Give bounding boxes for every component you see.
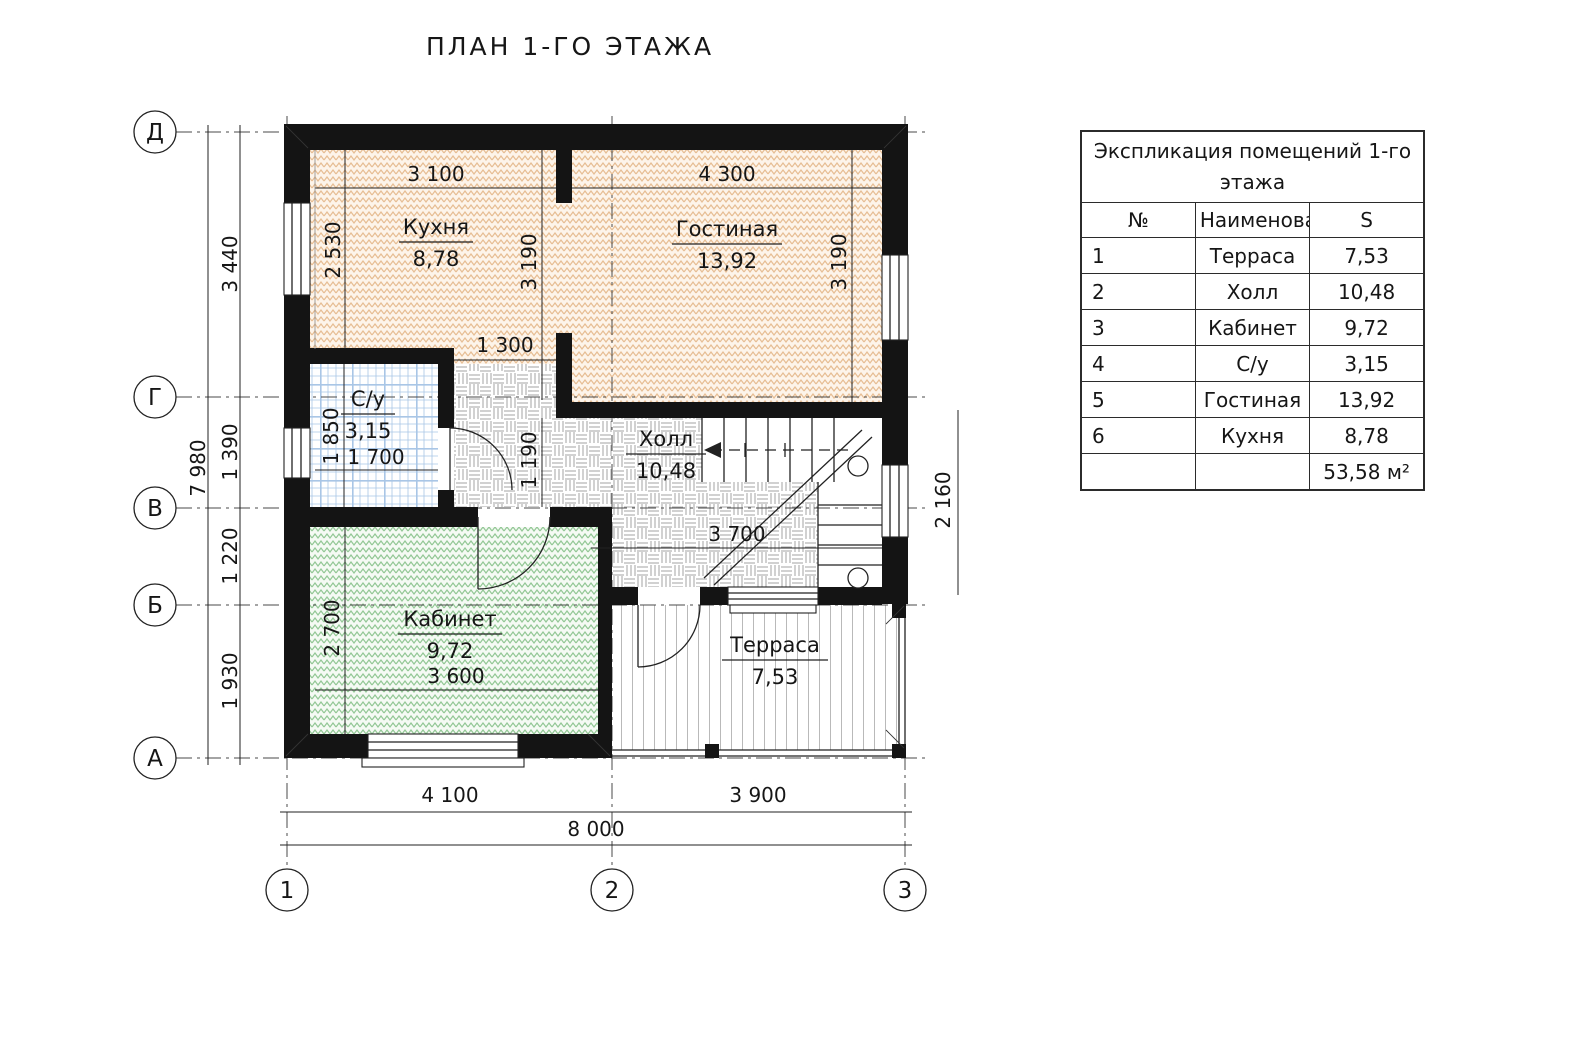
- total-empty-name: [1195, 454, 1309, 491]
- dim-kitchen-left: 2 530: [321, 221, 345, 278]
- table-header-row: № Наименование S: [1081, 203, 1424, 238]
- dim-hall-width: 3 700: [708, 522, 765, 546]
- terrace-area: 7,53: [752, 665, 799, 689]
- table-title: Экспликация помещений 1-го этажа: [1081, 131, 1424, 203]
- row-num: 5: [1081, 382, 1195, 418]
- row-name: С/у: [1195, 346, 1309, 382]
- row-name: Терраса: [1195, 238, 1309, 274]
- wall-office-top-left: [308, 507, 478, 527]
- table-title-row: Экспликация помещений 1-го этажа: [1081, 131, 1424, 203]
- axis-label-row-b: Б: [147, 593, 163, 619]
- window-stairs-right: [882, 465, 908, 537]
- row-area: 8,78: [1310, 418, 1424, 454]
- dim-left-seg-2: 1 390: [218, 423, 242, 480]
- col-header-area: S: [1310, 203, 1424, 238]
- dim-left-seg-1: 3 440: [218, 235, 242, 292]
- window-bath-left: [284, 428, 310, 478]
- terrace-post-2: [892, 744, 906, 758]
- wall-office-right: [598, 527, 612, 758]
- window-office-bottom: [362, 734, 524, 767]
- row-area: 9,72: [1310, 310, 1424, 346]
- window-terrace-top: [728, 587, 818, 613]
- dim-office-bottom: 3 600: [427, 664, 484, 688]
- office-area: 9,72: [427, 639, 474, 663]
- kitchen-area: 8,78: [413, 247, 460, 271]
- axis-label-row-g: Г: [148, 385, 162, 411]
- stairs-area-right: [818, 418, 882, 587]
- wall-bath-right-lower: [438, 490, 454, 507]
- wall-top: [284, 124, 908, 150]
- dim-bottom-seg-1: 4 100: [421, 783, 478, 807]
- hall-name: Холл: [639, 427, 693, 451]
- dim-corridor: 1 190: [517, 431, 541, 488]
- dim-kitchen-opening: 1 300: [476, 333, 533, 357]
- dim-bath-bottom: 1 700: [347, 445, 404, 469]
- stairs-newel-top: [848, 456, 868, 476]
- stairs-newel-bottom: [848, 568, 868, 588]
- total-area: 53,58 м²: [1310, 454, 1424, 491]
- dim-left-total: 7 980: [186, 439, 210, 496]
- axis-label-row-d: Д: [146, 120, 164, 146]
- floor-plan-drawing: ПЛАН 1-ГО ЭТАЖА: [0, 0, 1060, 1063]
- dim-left-seg-3: 1 220: [218, 527, 242, 584]
- dim-kitchen-top: 3 100: [407, 162, 464, 186]
- table-row: 4 С/у 3,15: [1081, 346, 1424, 382]
- row-num: 3: [1081, 310, 1195, 346]
- row-num: 2: [1081, 274, 1195, 310]
- wall-living-hall: [556, 402, 882, 418]
- table-row: 3 Кабинет 9,72: [1081, 310, 1424, 346]
- window-living-right: [882, 255, 908, 340]
- kitchen-living-opening-floor: [556, 203, 572, 333]
- row-name: Гостиная: [1195, 382, 1309, 418]
- row-num: 4: [1081, 346, 1195, 382]
- wall-kitchen-living-stub-lower: [556, 333, 572, 402]
- row-area: 10,48: [1310, 274, 1424, 310]
- dim-living-top: 4 300: [698, 162, 755, 186]
- wall-hall-terrace-3: [818, 587, 882, 605]
- terrace-rail-bottom: [612, 750, 905, 756]
- table-row: 1 Терраса 7,53: [1081, 238, 1424, 274]
- table-total-row: 53,58 м²: [1081, 454, 1424, 491]
- window-kitchen-left: [284, 203, 310, 295]
- dim-bottom-total: 8 000: [567, 817, 624, 841]
- hall-area: 10,48: [636, 459, 696, 483]
- terrace-post-1: [705, 744, 719, 758]
- col-header-name: Наименование: [1195, 203, 1309, 238]
- row-area: 13,92: [1310, 382, 1424, 418]
- dim-living-right: 3 190: [827, 233, 851, 290]
- bath-name: С/у: [351, 387, 385, 411]
- wall-hall-terrace-2: [700, 587, 728, 605]
- living-name: Гостиная: [676, 217, 778, 241]
- axis-label-col-2: 2: [605, 878, 620, 904]
- col-header-num: №: [1081, 203, 1195, 238]
- wall-bath-right-upper: [438, 364, 454, 428]
- row-name: Кабинет: [1195, 310, 1309, 346]
- drawing-title: ПЛАН 1-ГО ЭТАЖА: [426, 32, 714, 61]
- living-area: 13,92: [697, 249, 757, 273]
- room-schedule-table: Экспликация помещений 1-го этажа № Наиме…: [1080, 130, 1425, 491]
- dim-office-left: 2 700: [320, 599, 344, 656]
- dim-left-seg-4: 1 930: [218, 652, 242, 709]
- row-name: Холл: [1195, 274, 1309, 310]
- axis-label-row-a: А: [147, 746, 163, 772]
- wall-kitchen-living-stub-upper: [556, 150, 572, 203]
- bath-area: 3,15: [345, 419, 392, 443]
- dim-bath-left: 1 850: [319, 407, 343, 464]
- wall-hall-terrace-1: [612, 587, 638, 605]
- row-num: 6: [1081, 418, 1195, 454]
- kitchen-name: Кухня: [403, 215, 469, 239]
- table-row: 5 Гостиная 13,92: [1081, 382, 1424, 418]
- total-empty-num: [1081, 454, 1195, 491]
- table-row: 6 Кухня 8,78: [1081, 418, 1424, 454]
- axis-label-row-v: В: [147, 496, 163, 522]
- dim-bottom-seg-2: 3 900: [729, 783, 786, 807]
- row-num: 1: [1081, 238, 1195, 274]
- dim-kitchen-right: 3 190: [517, 233, 541, 290]
- wall-bath-top: [308, 348, 454, 364]
- table-row: 2 Холл 10,48: [1081, 274, 1424, 310]
- office-name: Кабинет: [403, 607, 496, 631]
- axis-label-col-3: 3: [898, 878, 913, 904]
- axis-label-col-1: 1: [280, 878, 295, 904]
- floor-plan-sheet: ПЛАН 1-ГО ЭТАЖА: [0, 0, 1595, 1063]
- row-name: Кухня: [1195, 418, 1309, 454]
- dim-stairs-right: 2 160: [931, 471, 955, 528]
- wall-office-top-right: [550, 507, 612, 527]
- row-area: 3,15: [1310, 346, 1424, 382]
- row-area: 7,53: [1310, 238, 1424, 274]
- terrace-name: Терраса: [729, 633, 820, 657]
